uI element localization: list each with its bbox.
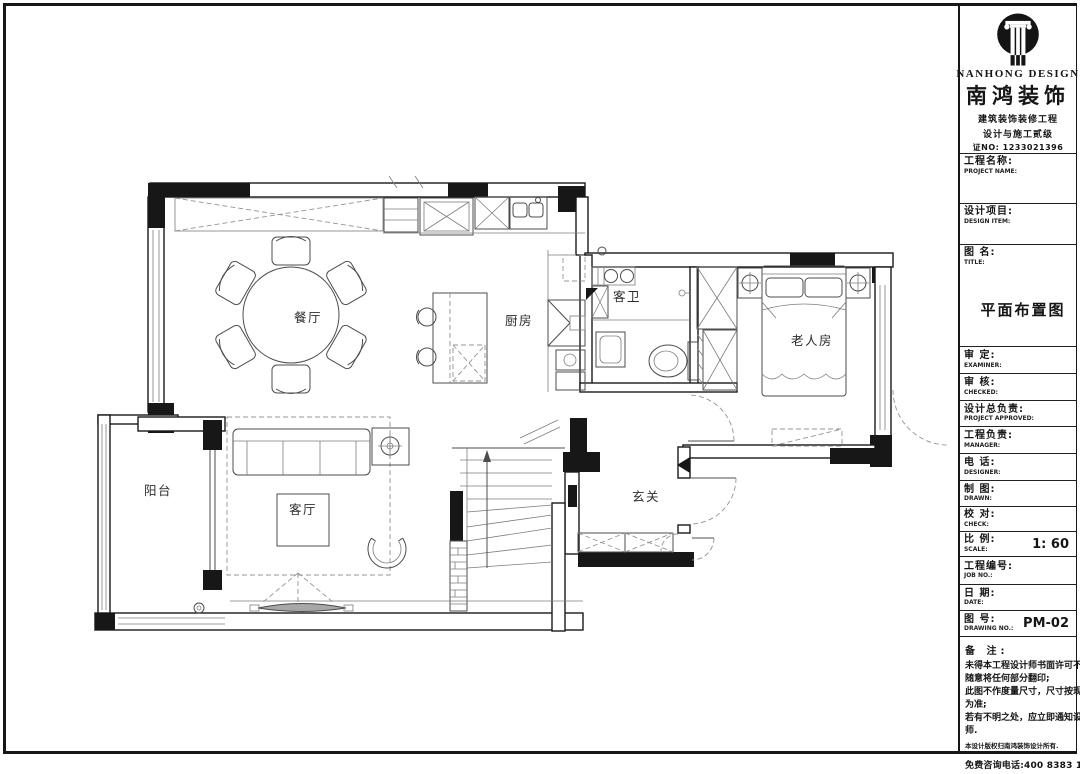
- company-name-en: NANHONG DESIGN: [956, 68, 1079, 80]
- field-label-en: TITLE:: [964, 259, 1063, 265]
- bathroom-fixtures: [586, 267, 698, 380]
- service-hotline: 免费咨询电话:400 8383 168: [965, 758, 1071, 771]
- kitchen-casework: [175, 197, 585, 392]
- field-label-en: DESIGN ITEM:: [964, 218, 1063, 224]
- field-label-en: DATE:: [964, 600, 993, 606]
- room-label-elder: 老人房: [791, 333, 833, 348]
- stairs: [450, 420, 565, 611]
- scale-value: 1: 60: [1032, 537, 1072, 552]
- field-label-cn: 设计项目:: [964, 207, 1072, 218]
- cert-number: 证NO: 1233021396: [973, 142, 1064, 153]
- notes-line: 为准;: [965, 699, 1071, 712]
- field-date: 日 期:DATE:: [960, 585, 1076, 611]
- room-label-foyer: 玄关: [632, 489, 660, 504]
- field-label-cn: 电 话:: [964, 458, 1004, 469]
- field-scale: 比 例:SCALE: 1: 60: [960, 532, 1076, 557]
- field-label-en: MANAGER:: [964, 442, 1009, 448]
- room-label-kitchen: 厨房: [505, 313, 533, 328]
- field-label-en: CHECKED:: [964, 389, 998, 395]
- field-drawing-no: 图 号:DRAWING NO.: PM-02: [960, 611, 1076, 637]
- field-label-en: PROJECT APPROVED:: [964, 416, 1034, 422]
- cert-line-1: 建筑装饰装修工程: [978, 112, 1058, 125]
- field-manager: 工程负责:MANAGER:: [960, 427, 1076, 454]
- field-label-en: DRAWN:: [964, 496, 993, 502]
- notes-line: 若有不明之处，应立即通知设计: [965, 712, 1071, 725]
- notes-line: 此图不作度量尺寸，尺寸按现场: [965, 686, 1071, 699]
- drawing-sheet: { "title_block": { "company_en": "NANHON…: [0, 0, 1080, 757]
- field-check: 校 对:CHECK:: [960, 507, 1076, 532]
- field-label-en: DESIGNER:: [964, 469, 1001, 475]
- field-label-en: CHECK:: [964, 521, 993, 527]
- dining-table-set: [214, 237, 369, 394]
- field-label-cn: 工程负责:: [964, 431, 1013, 442]
- notes-copyright: 本设计版权归南鸿装饰设计所有.: [965, 740, 1071, 750]
- field-project-name: 工程名称: PROJECT NAME:: [960, 154, 1076, 204]
- field-label-cn: 审 核:: [964, 378, 1001, 389]
- bedroom-furniture: [738, 266, 870, 446]
- drawing-number-value: PM-02: [1023, 616, 1072, 631]
- room-label-bath: 客卫: [613, 289, 641, 304]
- foyer-elements: [578, 533, 673, 552]
- notes-title: 备 注:: [965, 642, 1071, 657]
- field-examiner: 审 定:EXAMINER:: [960, 347, 1076, 374]
- field-label-cn: 校 对:: [964, 510, 995, 521]
- company-logo-column-icon: [958, 12, 1078, 67]
- cert-line-2: 设计与施工贰级: [983, 127, 1053, 140]
- field-drawn: 制 图:DRAWN:: [960, 481, 1076, 507]
- field-label-cn: 比 例:: [964, 535, 995, 546]
- notes-line: 未得本工程设计师书面许可不得: [965, 660, 1071, 673]
- field-label-en: PROJECT NAME:: [964, 168, 1063, 174]
- drawing-title-value: 平面布置图: [964, 299, 1072, 320]
- room-label-living: 客厅: [289, 502, 317, 517]
- field-designer-phone: 电 话:DESIGNER:: [960, 454, 1076, 481]
- field-label-cn: 图 名:: [964, 248, 1072, 259]
- wall-layer: [95, 176, 893, 631]
- field-job-no: 工程编号:JOB NO.:: [960, 557, 1076, 585]
- island-counter: [416, 293, 487, 383]
- company-header: NANHONG DESIGN 南鸿装饰 建筑装饰装修工程 设计与施工贰级 证NO…: [960, 6, 1076, 154]
- floor-plan-canvas: 餐厅 厨房 客卫 老人房 阳台 客厅 玄关: [0, 0, 958, 757]
- door-swings: [661, 390, 948, 560]
- field-label-en: DRAWING NO.:: [964, 626, 1013, 632]
- living-furniture: [227, 417, 583, 612]
- field-label-cn: 审 定:: [964, 351, 1005, 362]
- field-label-en: SCALE:: [964, 546, 993, 552]
- field-label-cn: 工程名称:: [964, 157, 1072, 168]
- field-label-en: JOB NO.:: [964, 573, 1009, 579]
- field-project-approved: 设计总负责:PROJECT APPROVED:: [960, 401, 1076, 427]
- room-label-dining: 餐厅: [294, 310, 322, 325]
- title-block: NANHONG DESIGN 南鸿装饰 建筑装饰装修工程 设计与施工贰级 证NO…: [958, 6, 1076, 751]
- balcony-elements: [194, 603, 204, 613]
- field-label-en: EXAMINER:: [964, 362, 1002, 368]
- wardrobe: [697, 267, 737, 390]
- notes-line: 师.: [965, 725, 1071, 738]
- field-design-item: 设计项目: DESIGN ITEM:: [960, 204, 1076, 245]
- field-drawing-title: 图 名: TITLE: 平面布置图: [960, 245, 1076, 347]
- room-labels: 餐厅 厨房 客卫 老人房 阳台 客厅 玄关: [144, 289, 833, 517]
- company-name-cn: 南鸿装饰: [966, 80, 1070, 110]
- field-checked: 审 核:CHECKED:: [960, 374, 1076, 401]
- notes-line: 随意将任何部分翻印;: [965, 673, 1071, 686]
- notes-section: 备 注: 未得本工程设计师书面许可不得 随意将任何部分翻印; 此图不作度量尺寸，…: [960, 637, 1076, 774]
- room-label-balcony: 阳台: [144, 483, 172, 498]
